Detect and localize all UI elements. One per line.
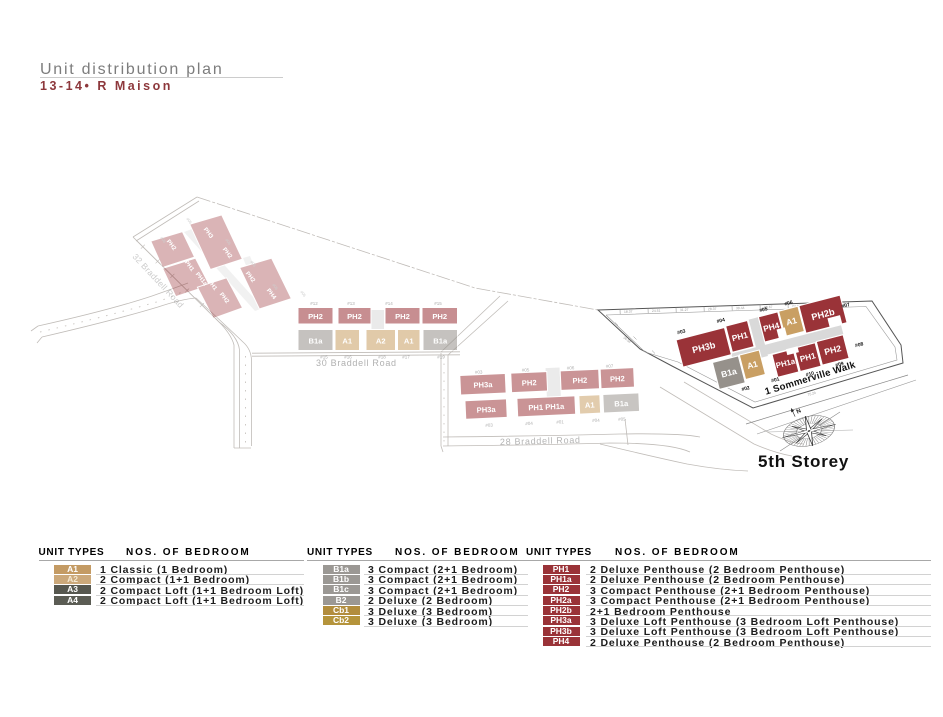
svg-text:24.51: 24.51 — [652, 309, 661, 313]
svg-text:PH2: PH2 — [395, 312, 410, 321]
svg-text:28.37: 28.37 — [708, 307, 717, 311]
svg-text:A2: A2 — [376, 337, 386, 346]
svg-text:PH2: PH2 — [308, 312, 323, 321]
svg-text:#04: #04 — [592, 418, 600, 423]
svg-text:B1a: B1a — [309, 337, 324, 346]
svg-text:PH3a: PH3a — [473, 380, 493, 390]
svg-text:PH2: PH2 — [432, 312, 447, 321]
svg-text:PH2: PH2 — [610, 374, 625, 384]
svg-text:#03: #03 — [475, 369, 483, 374]
svg-text:5th Storey: 5th Storey — [758, 452, 849, 471]
svg-text:#17: #17 — [402, 355, 410, 360]
svg-text:#19: #19 — [437, 355, 445, 360]
svg-text:B1a: B1a — [614, 399, 629, 409]
svg-text:#06: #06 — [567, 365, 575, 370]
svg-text:PH1 PH1a: PH1 PH1a — [528, 402, 565, 413]
svg-text:A1: A1 — [585, 400, 596, 409]
svg-text:#05: #05 — [618, 417, 626, 422]
svg-text:30.44: 30.44 — [736, 306, 745, 310]
svg-text:A1: A1 — [404, 337, 414, 346]
svg-text:#13: #13 — [347, 301, 355, 306]
svg-text:A1: A1 — [342, 337, 352, 346]
svg-text:PH2: PH2 — [572, 376, 587, 386]
svg-text:PH2: PH2 — [522, 378, 537, 388]
svg-text:#06: #06 — [299, 290, 308, 299]
svg-text:28 Braddell Road: 28 Braddell Road — [500, 435, 581, 447]
svg-text:#05: #05 — [522, 367, 530, 372]
svg-text:30 Braddell Road: 30 Braddell Road — [316, 358, 397, 368]
svg-text:#14: #14 — [385, 301, 393, 306]
svg-text:#01: #01 — [556, 419, 564, 424]
svg-text:PH3a: PH3a — [476, 405, 496, 415]
svg-text:PH2: PH2 — [347, 312, 362, 321]
svg-text:B1a: B1a — [433, 337, 448, 346]
svg-text:N: N — [796, 408, 803, 415]
svg-text:31.27: 31.27 — [680, 308, 689, 312]
svg-text:#03: #03 — [485, 423, 493, 428]
svg-text:#15: #15 — [434, 301, 442, 306]
svg-text:#04: #04 — [525, 421, 533, 426]
svg-text:18.37: 18.37 — [624, 310, 633, 314]
svg-text:#12: #12 — [310, 301, 318, 306]
svg-text:#07: #07 — [606, 364, 614, 369]
